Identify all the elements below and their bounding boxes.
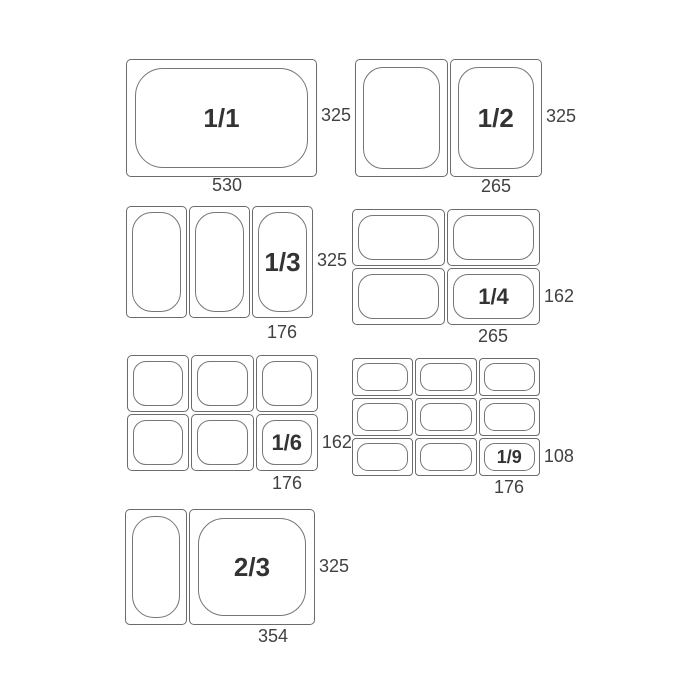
pan-well (357, 403, 408, 431)
pan-well (133, 420, 183, 465)
pan (127, 355, 189, 412)
pan: 1/4 (447, 268, 540, 325)
pan: 2/3 (189, 509, 315, 625)
pan (125, 509, 187, 625)
pan-well (358, 274, 439, 319)
pan (352, 268, 445, 325)
pan-well (132, 516, 180, 618)
side-dimension-label: 162 (322, 432, 352, 452)
bottom-dimension-label: 265 (463, 326, 523, 346)
gn-1-4-group: 1/4 162 265 (352, 209, 540, 325)
pan-well (358, 215, 439, 260)
fraction-label: 1/9 (497, 448, 522, 466)
pan (479, 358, 540, 396)
bottom-dimension-label: 176 (252, 322, 312, 342)
gn-1-2-group: 1/2 325 265 (355, 59, 542, 177)
pan (415, 398, 476, 436)
pan-well: 1/6 (262, 420, 312, 465)
pan-well (262, 361, 312, 406)
pan-well (197, 420, 247, 465)
pan-well (132, 212, 181, 312)
pan (352, 358, 413, 396)
fraction-label: 2/3 (234, 554, 270, 580)
bottom-dimension-label: 176 (479, 477, 539, 497)
bottom-dimension-label: 530 (197, 175, 257, 195)
side-dimension-label: 325 (321, 105, 351, 125)
pan: 1/2 (450, 59, 543, 177)
gn-1-6-group: 1/6 162 176 (127, 355, 318, 471)
pan-well: 1/9 (484, 443, 535, 471)
pan (447, 209, 540, 266)
pan-well (195, 212, 244, 312)
bottom-dimension-label: 176 (257, 473, 317, 493)
pan (189, 206, 250, 318)
gn-1-1-group: 1/1 325 530 (126, 59, 317, 177)
side-dimension-label: 325 (319, 556, 349, 576)
pan-well (420, 443, 471, 471)
pan: 1/9 (479, 438, 540, 476)
pan: 1/1 (126, 59, 317, 177)
pan (191, 414, 253, 471)
pan-well (420, 363, 471, 391)
pan (191, 355, 253, 412)
pan-well (357, 443, 408, 471)
pan (352, 438, 413, 476)
pan (352, 398, 413, 436)
pan-well (133, 361, 183, 406)
fraction-label: 1/1 (203, 105, 239, 131)
pan: 1/3 (252, 206, 313, 318)
fraction-label: 1/3 (264, 249, 300, 275)
side-dimension-label: 325 (546, 106, 576, 126)
bottom-dimension-label: 265 (466, 176, 526, 196)
gn-1-9-group: 1/9 108 176 (352, 358, 540, 476)
gastronorm-size-diagram: 1/1 325 530 1/2 325 265 (0, 0, 700, 700)
pan (126, 206, 187, 318)
fraction-label: 1/6 (271, 432, 302, 454)
pan (479, 398, 540, 436)
pan-well: 2/3 (198, 518, 306, 616)
pan (352, 209, 445, 266)
pan (127, 414, 189, 471)
pan-well: 1/1 (135, 68, 308, 168)
fraction-label: 1/4 (478, 286, 509, 308)
pan-well (484, 403, 535, 431)
pan-well (420, 403, 471, 431)
pan-well: 1/2 (458, 67, 535, 169)
pan-well (197, 361, 247, 406)
pan-well (453, 215, 534, 260)
side-dimension-label: 108 (544, 446, 574, 466)
gn-2-3-group: 2/3 325 354 (125, 509, 315, 625)
pan (415, 438, 476, 476)
pan-well: 1/4 (453, 274, 534, 319)
side-dimension-label: 325 (317, 250, 347, 270)
pan (256, 355, 318, 412)
bottom-dimension-label: 354 (243, 626, 303, 646)
pan-well (484, 363, 535, 391)
fraction-label: 1/2 (478, 105, 514, 131)
pan-well (363, 67, 440, 169)
pan-well (357, 363, 408, 391)
pan: 1/6 (256, 414, 318, 471)
pan (415, 358, 476, 396)
pan-well: 1/3 (258, 212, 307, 312)
pan (355, 59, 448, 177)
gn-1-3-group: 1/3 325 176 (126, 206, 313, 318)
side-dimension-label: 162 (544, 286, 574, 306)
